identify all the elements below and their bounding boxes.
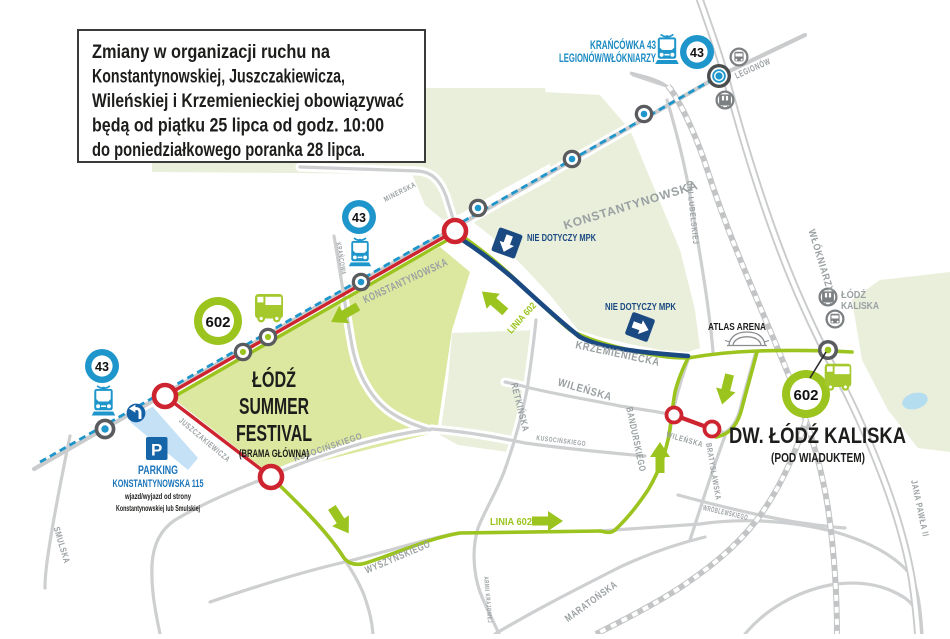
svg-text:KONSTANTYNOWSKA 115: KONSTANTYNOWSKA 115 xyxy=(113,478,204,490)
svg-text:Konstantynowskiej lub Smulskie: Konstantynowskiej lub Smulskiej xyxy=(116,503,200,513)
svg-text:602: 602 xyxy=(205,314,230,331)
svg-text:43: 43 xyxy=(352,211,366,225)
svg-text:43: 43 xyxy=(690,46,704,60)
svg-text:602: 602 xyxy=(793,387,818,404)
svg-text:LINIA 602: LINIA 602 xyxy=(490,517,532,528)
svg-text:PARKING: PARKING xyxy=(138,465,178,477)
svg-text:SUMMER: SUMMER xyxy=(239,393,309,419)
svg-text:P: P xyxy=(151,441,162,460)
svg-text:KRAŃCÓWKA 43: KRAŃCÓWKA 43 xyxy=(590,39,656,52)
svg-text:ATLAS ARENA: ATLAS ARENA xyxy=(708,321,766,333)
svg-text:ŁÓDŹ: ŁÓDŹ xyxy=(841,288,866,301)
svg-text:wjazd/wyjazd od strony: wjazd/wyjazd od strony xyxy=(124,491,191,501)
svg-text:(BRAMA GŁÓWNA): (BRAMA GŁÓWNA) xyxy=(239,447,309,460)
svg-text:DW. ŁÓDŹ KALISKA: DW. ŁÓDŹ KALISKA xyxy=(729,423,906,448)
svg-text:43: 43 xyxy=(95,360,109,374)
svg-text:NIE DOTYCZY MPK: NIE DOTYCZY MPK xyxy=(527,232,596,244)
svg-text:Konstantynowskiej, Juszczakiew: Konstantynowskiej, Juszczakiewicza, xyxy=(92,67,345,88)
svg-text:ŁÓDŹ: ŁÓDŹ xyxy=(252,367,296,392)
svg-text:NIE DOTYCZY MPK: NIE DOTYCZY MPK xyxy=(605,301,676,313)
svg-text:do poniedziałkowego poranka 28: do poniedziałkowego poranka 28 lipca. xyxy=(92,140,365,161)
svg-text:Zmiany w organizacji ruchu na: Zmiany w organizacji ruchu na xyxy=(92,42,330,63)
svg-text:Wileńskiej i Krzemienieckiej o: Wileńskiej i Krzemienieckiej obowiązywać xyxy=(92,91,404,112)
svg-text:LEGIONÓW/WŁÓKNIARZY: LEGIONÓW/WŁÓKNIARZY xyxy=(559,52,656,65)
svg-text:KALISKA: KALISKA xyxy=(841,301,879,312)
svg-text:(POD WIADUKTEM): (POD WIADUKTEM) xyxy=(771,450,865,465)
svg-text:FESTIVAL: FESTIVAL xyxy=(236,420,312,446)
svg-text:będą od piątku 25 lipca od god: będą od piątku 25 lipca od godz. 10:00 xyxy=(92,116,384,137)
